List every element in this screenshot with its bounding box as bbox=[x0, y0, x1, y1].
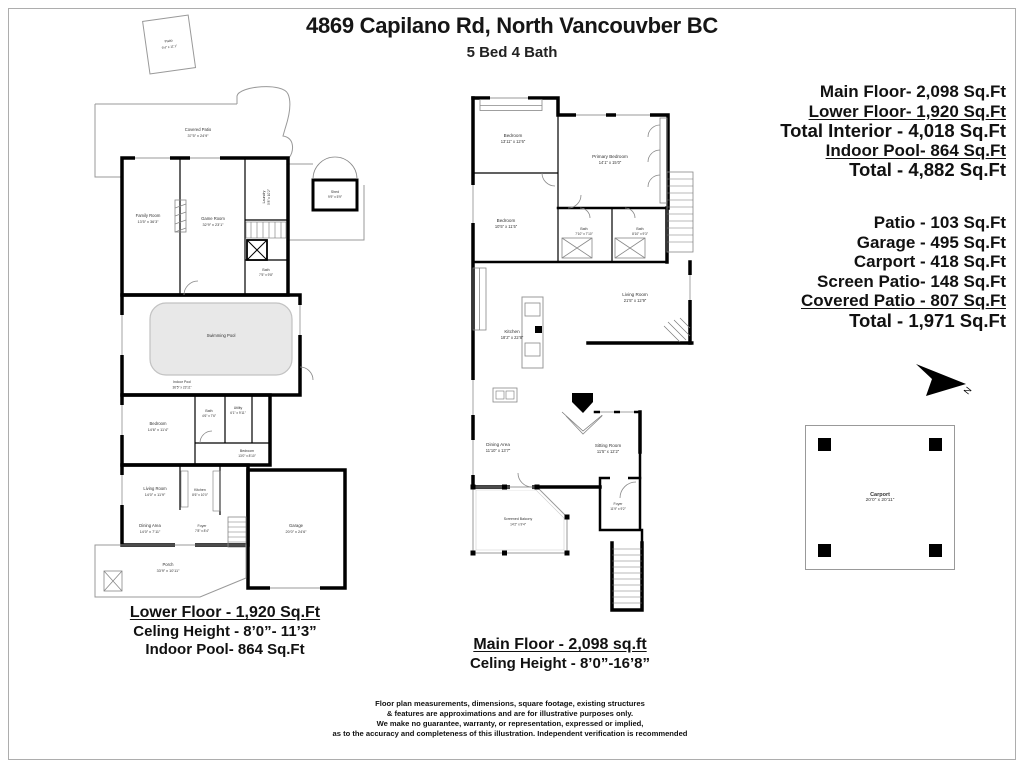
room-label-bath-mid: Bath 4’6” x 7’6” bbox=[202, 409, 216, 418]
svg-text:5’8” x 10’2”: 5’8” x 10’2” bbox=[267, 189, 271, 205]
room-label-porch: Porch 33’9” x 10’11” bbox=[157, 562, 180, 573]
room-label-kitchen: Kitchen 18’2” x 22’8” bbox=[501, 329, 524, 340]
disclaimer-line: We make no guarantee, warranty, or repre… bbox=[330, 719, 690, 729]
room-label-covered-patio: Covered Patio 37’5” x 24’9” bbox=[185, 127, 212, 138]
svg-text:14’1” x 15’0”: 14’1” x 15’0” bbox=[599, 160, 622, 165]
north-arrow: N bbox=[910, 358, 980, 403]
svg-text:14’6” x 11’4”: 14’6” x 11’4” bbox=[148, 428, 169, 432]
summary-line: Total - 1,971 Sq.Ft bbox=[801, 311, 1006, 331]
svg-text:Indoor Pool: Indoor Pool bbox=[173, 380, 191, 384]
svg-text:Shed: Shed bbox=[331, 190, 339, 194]
lower-floor-caption: Lower Floor - 1,920 Sq.Ft Celing Height … bbox=[100, 603, 350, 659]
shed bbox=[313, 157, 357, 210]
room-label-bath-left: Bath 7’10” x 7’10” bbox=[575, 227, 593, 236]
room-label-bath-upper: Bath 7’5” x 9’8” bbox=[259, 268, 273, 277]
svg-text:11’10” x 13’7”: 11’10” x 13’7” bbox=[486, 448, 511, 453]
room-label-bedroom-left: Bedroom 10’5” x 11’5” bbox=[495, 218, 518, 229]
patio-outline: Patio 9’4” x 11’1” bbox=[143, 15, 196, 74]
exterior-summary: Patio - 103 Sq.Ft Garage - 495 Sq.Ft Car… bbox=[801, 213, 1006, 330]
svg-text:Family Room: Family Room bbox=[136, 213, 161, 218]
svg-text:14’0” x 11’9”: 14’0” x 11’9” bbox=[145, 493, 166, 497]
room-label-screened-balcony: Screened Balcony 14’2” x 9’4” bbox=[504, 517, 533, 527]
room-label-bedroom-right: Bedroom 13’0” x 8’10” bbox=[238, 449, 256, 458]
svg-text:Foyer: Foyer bbox=[198, 524, 208, 528]
summary-line: Garage - 495 Sq.Ft bbox=[801, 233, 1006, 253]
carport-diagram: Carport 20’0” x 20’11” bbox=[805, 425, 955, 570]
svg-text:11’9” x 9’2”: 11’9” x 9’2” bbox=[610, 507, 626, 511]
svg-text:Patio: Patio bbox=[164, 38, 173, 43]
room-label-swimming-pool: Swimming Pool bbox=[207, 333, 236, 338]
svg-text:Living Room: Living Room bbox=[143, 486, 167, 491]
svg-text:Porch: Porch bbox=[163, 562, 175, 567]
summary-line: Carport - 418 Sq.Ft bbox=[801, 252, 1006, 272]
summary-line: Screen Patio- 148 Sq.Ft bbox=[801, 272, 1006, 292]
main-floor-plan: Bedroom 13’11” x 12’6” Primary Bedroom 1… bbox=[450, 90, 700, 620]
svg-text:6’1” x 9’11”: 6’1” x 9’11” bbox=[230, 411, 246, 415]
svg-text:18’2” x 22’8”: 18’2” x 22’8” bbox=[501, 335, 524, 340]
svg-text:36’5” x 23’11”: 36’5” x 23’11” bbox=[172, 386, 191, 390]
room-label-bath-right: Bath 8’10” x 9’3” bbox=[632, 227, 648, 236]
fireplace bbox=[562, 393, 606, 434]
svg-text:Laundry: Laundry bbox=[262, 190, 266, 203]
room-label-patio: Patio 9’4” x 11’1” bbox=[161, 38, 178, 50]
summary-line: Covered Patio - 807 Sq.Ft bbox=[801, 291, 1006, 311]
room-label-dining-area: Dining Area 11’10” x 13’7” bbox=[486, 442, 511, 453]
upper-deck-stairs bbox=[667, 172, 693, 252]
svg-text:13’5” x 36’3”: 13’5” x 36’3” bbox=[138, 220, 160, 224]
room-label-sitting-room: Sitting Room 11’5” x 12’2” bbox=[595, 443, 621, 454]
interior-summary: Main Floor- 2,098 Sq.Ft Lower Floor- 1,9… bbox=[780, 82, 1006, 180]
svg-text:Covered Patio: Covered Patio bbox=[185, 127, 212, 132]
lower-caption-line3: Indoor Pool- 864 Sq.Ft bbox=[100, 641, 350, 659]
svg-text:14’0” x 7’11”: 14’0” x 7’11” bbox=[140, 530, 161, 534]
svg-text:4’6” x 7’6”: 4’6” x 7’6” bbox=[202, 414, 216, 418]
main-partitions bbox=[473, 100, 667, 263]
svg-text:7’10” x 7’10”: 7’10” x 7’10” bbox=[575, 232, 593, 236]
svg-text:Screened Balcony: Screened Balcony bbox=[504, 517, 533, 521]
svg-text:9’4” x 11’1”: 9’4” x 11’1” bbox=[161, 44, 177, 50]
svg-text:Bedroom: Bedroom bbox=[504, 133, 523, 138]
lower-caption-line1: Lower Floor - 1,920 Sq.Ft bbox=[100, 603, 350, 623]
svg-text:8’10” x 9’3”: 8’10” x 9’3” bbox=[632, 232, 648, 236]
room-label-primary-bedroom: Primary Bedroom 14’1” x 15’0” bbox=[592, 154, 628, 165]
living-corner-hatch bbox=[664, 318, 690, 342]
summary-line: Lower Floor- 1,920 Sq.Ft bbox=[780, 102, 1006, 122]
svg-text:Kitchen: Kitchen bbox=[504, 329, 520, 334]
floor-plan-page: { "header": { "title": "4869 Capilano Rd… bbox=[0, 0, 1024, 768]
svg-text:Kitchen: Kitchen bbox=[194, 488, 206, 492]
room-label-indoor-pool: Indoor Pool 36’5” x 23’11” bbox=[172, 380, 191, 390]
svg-text:21’5” x 12’9”: 21’5” x 12’9” bbox=[624, 298, 647, 303]
room-label-living-room: Living Room 21’5” x 12’9” bbox=[622, 292, 648, 303]
svg-text:Bath: Bath bbox=[580, 227, 587, 231]
disclaimer: Floor plan measurements, dimensions, squ… bbox=[330, 699, 690, 739]
room-label-utility: Utility 6’1” x 9’11” bbox=[230, 406, 246, 415]
svg-text:Living Room: Living Room bbox=[622, 292, 648, 297]
svg-text:20’0” x 24’6”: 20’0” x 24’6” bbox=[286, 530, 308, 534]
svg-text:33’9” x 10’11”: 33’9” x 10’11” bbox=[157, 569, 180, 573]
svg-text:Primary Bedroom: Primary Bedroom bbox=[592, 154, 628, 159]
main-caption-line1: Main Floor - 2,098 sq.ft bbox=[445, 635, 675, 655]
north-arrow-shape bbox=[916, 364, 966, 396]
svg-text:11’5” x 12’2”: 11’5” x 12’2” bbox=[597, 449, 620, 454]
svg-text:7’5” x 9’8”: 7’5” x 9’8” bbox=[259, 273, 273, 277]
lower-floor-plan: Patio 9’4” x 11’1” bbox=[80, 5, 380, 605]
swimming-pool-shape bbox=[150, 303, 292, 375]
main-caption-line2: Celing Height - 8’0”-16’8” bbox=[445, 655, 675, 673]
svg-text:Bath: Bath bbox=[205, 409, 212, 413]
svg-text:Dining Area: Dining Area bbox=[486, 442, 510, 447]
north-label: N bbox=[962, 385, 974, 396]
svg-text:Bath: Bath bbox=[262, 268, 269, 272]
carport-dims: 20’0” x 20’11” bbox=[866, 498, 895, 503]
summary-line: Total Interior - 4,018 Sq.Ft bbox=[780, 121, 1006, 141]
room-label-laundry: Laundry 5’8” x 10’2” bbox=[262, 189, 271, 205]
svg-text:Dining Area: Dining Area bbox=[139, 523, 161, 528]
svg-text:Bedroom: Bedroom bbox=[497, 218, 516, 223]
main-windows bbox=[471, 95, 693, 498]
disclaimer-line: as to the accuracy and completeness of t… bbox=[330, 729, 690, 739]
summary-line: Main Floor- 2,098 Sq.Ft bbox=[780, 82, 1006, 102]
main-floor-caption: Main Floor - 2,098 sq.ft Celing Height -… bbox=[445, 635, 675, 673]
room-label-foyer: Foyer 7’8” x 8’4” bbox=[195, 524, 209, 533]
svg-text:Garage: Garage bbox=[289, 523, 304, 528]
room-label-dining-area: Dining Area 14’0” x 7’11” bbox=[139, 523, 161, 534]
room-label-living-room: Living Room 14’0” x 11’9” bbox=[143, 486, 167, 497]
summary-line: Total - 4,882 Sq.Ft bbox=[780, 160, 1006, 180]
room-label-bedroom-left: Bedroom 14’6” x 11’4” bbox=[148, 421, 169, 432]
room-label-kitchen: Kitchen 8’6” x 10’0” bbox=[192, 488, 208, 497]
svg-text:Utility: Utility bbox=[234, 406, 243, 410]
svg-text:Foyer: Foyer bbox=[614, 502, 624, 506]
svg-text:Bath: Bath bbox=[636, 227, 643, 231]
svg-text:Game Room: Game Room bbox=[201, 216, 225, 221]
disclaimer-line: Floor plan measurements, dimensions, squ… bbox=[330, 699, 690, 709]
svg-text:9’9” x 5’9”: 9’9” x 5’9” bbox=[328, 195, 342, 199]
svg-text:8’6” x 10’0”: 8’6” x 10’0” bbox=[192, 493, 208, 497]
room-label-garage: Garage 20’0” x 24’6” bbox=[286, 523, 308, 534]
svg-text:Bedroom: Bedroom bbox=[150, 421, 168, 426]
summary-line: Indoor Pool- 864 Sq.Ft bbox=[780, 141, 1006, 161]
carport-label: Carport 20’0” x 20’11” bbox=[806, 426, 954, 569]
svg-text:Sitting Room: Sitting Room bbox=[595, 443, 621, 448]
svg-text:14’2” x 9’4”: 14’2” x 9’4” bbox=[510, 523, 526, 527]
lower-caption-line2: Celing Height - 8’0”- 11’3” bbox=[100, 623, 350, 641]
svg-text:37’5” x 24’9”: 37’5” x 24’9” bbox=[188, 134, 210, 138]
disclaimer-line: & features are approximations and are fo… bbox=[330, 709, 690, 719]
lower-exit-stairs bbox=[612, 549, 642, 603]
svg-text:7’8” x 8’4”: 7’8” x 8’4” bbox=[195, 529, 209, 533]
room-label-bedroom-top: Bedroom 13’11” x 12’6” bbox=[501, 133, 526, 144]
svg-text:Bedroom: Bedroom bbox=[240, 449, 254, 453]
svg-text:13’0” x 8’10”: 13’0” x 8’10” bbox=[238, 454, 256, 458]
room-label-game-room: Game Room 32’9” x 23’1” bbox=[201, 216, 225, 227]
room-label-family-room: Family Room 13’5” x 36’3” bbox=[136, 213, 161, 224]
svg-text:Swimming Pool: Swimming Pool bbox=[207, 333, 236, 338]
summary-line: Patio - 103 Sq.Ft bbox=[801, 213, 1006, 233]
svg-text:32’9” x 23’1”: 32’9” x 23’1” bbox=[203, 223, 225, 227]
svg-text:13’11” x 12’6”: 13’11” x 12’6” bbox=[501, 139, 526, 144]
svg-text:10’5” x 11’5”: 10’5” x 11’5” bbox=[495, 224, 518, 229]
